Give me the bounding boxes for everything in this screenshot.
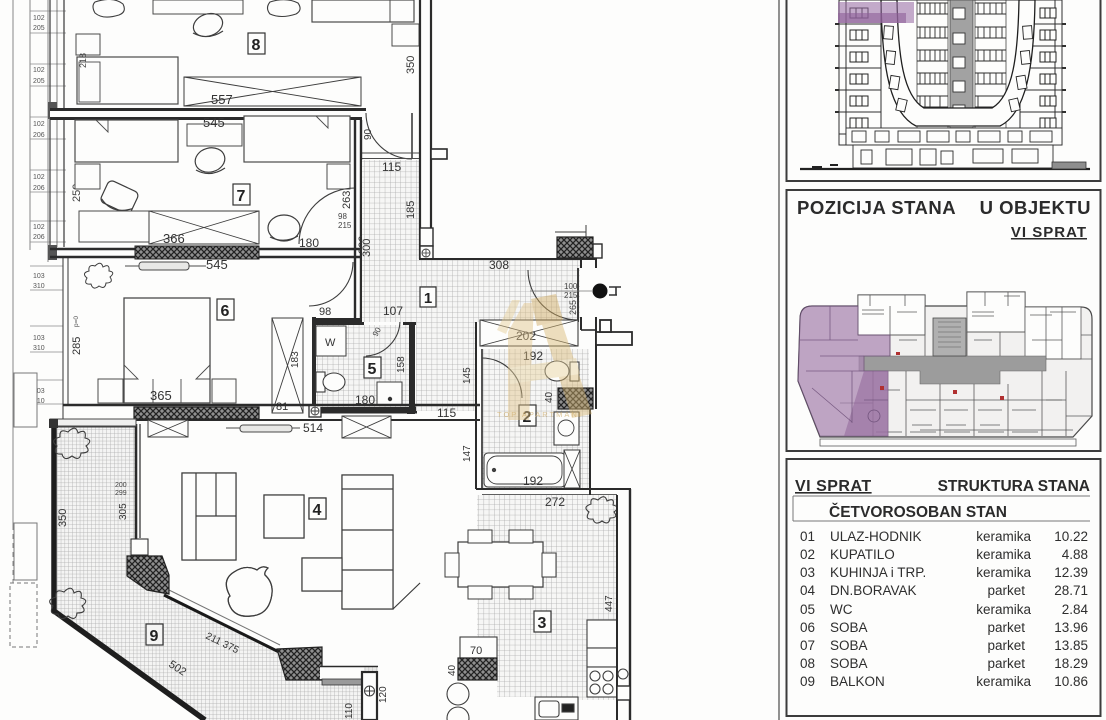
svg-text:81: 81 [276, 401, 288, 413]
svg-text:514: 514 [303, 421, 323, 435]
svg-text:206: 206 [33, 234, 45, 241]
svg-text:192: 192 [523, 474, 543, 488]
svg-text:3: 3 [538, 615, 547, 632]
svg-text:p=0: p=0 [73, 316, 80, 327]
svg-text:305: 305 [118, 503, 129, 520]
svg-text:100: 100 [564, 282, 578, 291]
svg-text:keramika: keramika [976, 602, 1031, 617]
svg-text:215: 215 [338, 221, 352, 230]
svg-text:265: 265 [568, 300, 578, 315]
svg-text:12.39: 12.39 [1054, 565, 1088, 580]
svg-text:5: 5 [368, 361, 377, 378]
svg-text:308: 308 [489, 258, 509, 272]
svg-text:102: 102 [33, 15, 45, 22]
svg-text:09: 09 [800, 674, 815, 689]
svg-text:SOBA: SOBA [830, 656, 868, 671]
svg-text:102: 102 [33, 121, 45, 128]
svg-text:9: 9 [150, 628, 159, 645]
svg-text:03: 03 [800, 565, 815, 580]
svg-text:205: 205 [33, 25, 45, 32]
svg-text:parket: parket [987, 638, 1025, 653]
svg-text:200: 200 [115, 482, 127, 489]
svg-text:350: 350 [405, 56, 417, 74]
svg-text:103: 103 [33, 335, 45, 342]
svg-text:04: 04 [800, 583, 816, 598]
svg-text:ČETVOROSOBAN STAN: ČETVOROSOBAN STAN [829, 503, 1007, 521]
svg-text:10.22: 10.22 [1054, 529, 1088, 544]
svg-text:98: 98 [319, 306, 331, 318]
svg-text:8: 8 [252, 37, 261, 54]
svg-text:40: 40 [447, 664, 458, 676]
svg-text:KUPATILO: KUPATILO [830, 547, 895, 562]
svg-text:350: 350 [57, 509, 69, 527]
svg-text:145: 145 [462, 367, 473, 384]
svg-text:115: 115 [437, 406, 456, 420]
svg-text:110: 110 [344, 703, 355, 719]
svg-text:POZICIJA STANA: POZICIJA STANA [797, 197, 956, 218]
svg-text:VI SPRAT: VI SPRAT [795, 478, 872, 495]
svg-text:ULAZ-HODNIK: ULAZ-HODNIK [830, 529, 922, 544]
svg-text:107: 107 [383, 304, 403, 318]
svg-text:keramika: keramika [976, 547, 1031, 562]
svg-text:07: 07 [800, 638, 815, 653]
svg-text:365: 365 [150, 388, 172, 403]
svg-text:147: 147 [462, 445, 473, 462]
svg-text:310: 310 [33, 283, 45, 290]
svg-text:parket: parket [987, 620, 1025, 635]
svg-text:206: 206 [33, 185, 45, 192]
svg-text:01: 01 [800, 529, 815, 544]
svg-text:215: 215 [564, 291, 578, 300]
svg-text:205: 205 [33, 78, 45, 85]
svg-text:VI SPRAT: VI SPRAT [1011, 224, 1087, 241]
svg-text:28.71: 28.71 [1054, 583, 1088, 598]
svg-text:BALKON: BALKON [830, 674, 885, 689]
svg-text:90: 90 [363, 128, 374, 140]
svg-text:18.29: 18.29 [1054, 656, 1088, 671]
svg-text:557: 557 [211, 92, 233, 107]
svg-text:05: 05 [800, 602, 815, 617]
svg-text:285: 285 [71, 337, 83, 355]
svg-text:2.84: 2.84 [1062, 602, 1089, 617]
svg-text:7: 7 [237, 188, 246, 205]
svg-text:W: W [325, 337, 336, 349]
svg-text:218: 218 [78, 53, 88, 68]
svg-text:185: 185 [405, 201, 417, 219]
svg-text:272: 272 [545, 495, 565, 509]
svg-text:70: 70 [470, 645, 482, 657]
svg-text:parket: parket [987, 583, 1025, 598]
svg-text:310: 310 [33, 345, 45, 352]
svg-text:U OBJEKTU: U OBJEKTU [980, 197, 1091, 218]
svg-text:115: 115 [382, 160, 401, 174]
svg-text:1: 1 [424, 290, 432, 307]
svg-text:02: 02 [800, 547, 815, 562]
svg-text:206: 206 [33, 132, 45, 139]
svg-text:SOBA: SOBA [830, 638, 868, 653]
svg-text:4: 4 [313, 502, 322, 519]
svg-text:13.85: 13.85 [1054, 638, 1088, 653]
svg-text:4.88: 4.88 [1062, 547, 1088, 562]
svg-text:102: 102 [33, 67, 45, 74]
svg-text:98: 98 [338, 212, 347, 221]
svg-text:300: 300 [361, 239, 373, 257]
svg-text:102: 102 [33, 174, 45, 181]
svg-text:366: 366 [163, 231, 185, 246]
svg-text:parket: parket [987, 656, 1025, 671]
svg-text:545: 545 [203, 115, 225, 130]
svg-text:10.86: 10.86 [1054, 674, 1088, 689]
svg-text:keramika: keramika [976, 565, 1031, 580]
svg-text:06: 06 [800, 620, 815, 635]
svg-text:KUHINJA i TRP.: KUHINJA i TRP. [830, 565, 926, 580]
svg-text:263: 263 [341, 191, 353, 209]
svg-text:WC: WC [830, 602, 853, 617]
svg-text:13.96: 13.96 [1054, 620, 1088, 635]
svg-text:STRUKTURA STANA: STRUKTURA STANA [938, 478, 1090, 495]
svg-text:183: 183 [290, 351, 301, 368]
svg-text:447: 447 [604, 595, 615, 612]
svg-text:120: 120 [378, 686, 389, 703]
svg-text:keramika: keramika [976, 529, 1031, 544]
svg-text:DN.BORAVAK: DN.BORAVAK [830, 583, 917, 598]
svg-text:TOP APARTMANI: TOP APARTMANI [497, 410, 583, 419]
svg-text:08: 08 [800, 656, 815, 671]
svg-text:103: 103 [33, 273, 45, 280]
svg-text:keramika: keramika [976, 674, 1031, 689]
svg-text:SOBA: SOBA [830, 620, 868, 635]
svg-text:102: 102 [33, 224, 45, 231]
svg-text:40: 40 [544, 391, 555, 403]
svg-text:158: 158 [396, 356, 407, 373]
svg-text:6: 6 [221, 303, 230, 320]
svg-text:545: 545 [206, 257, 228, 272]
svg-text:299: 299 [115, 490, 127, 497]
